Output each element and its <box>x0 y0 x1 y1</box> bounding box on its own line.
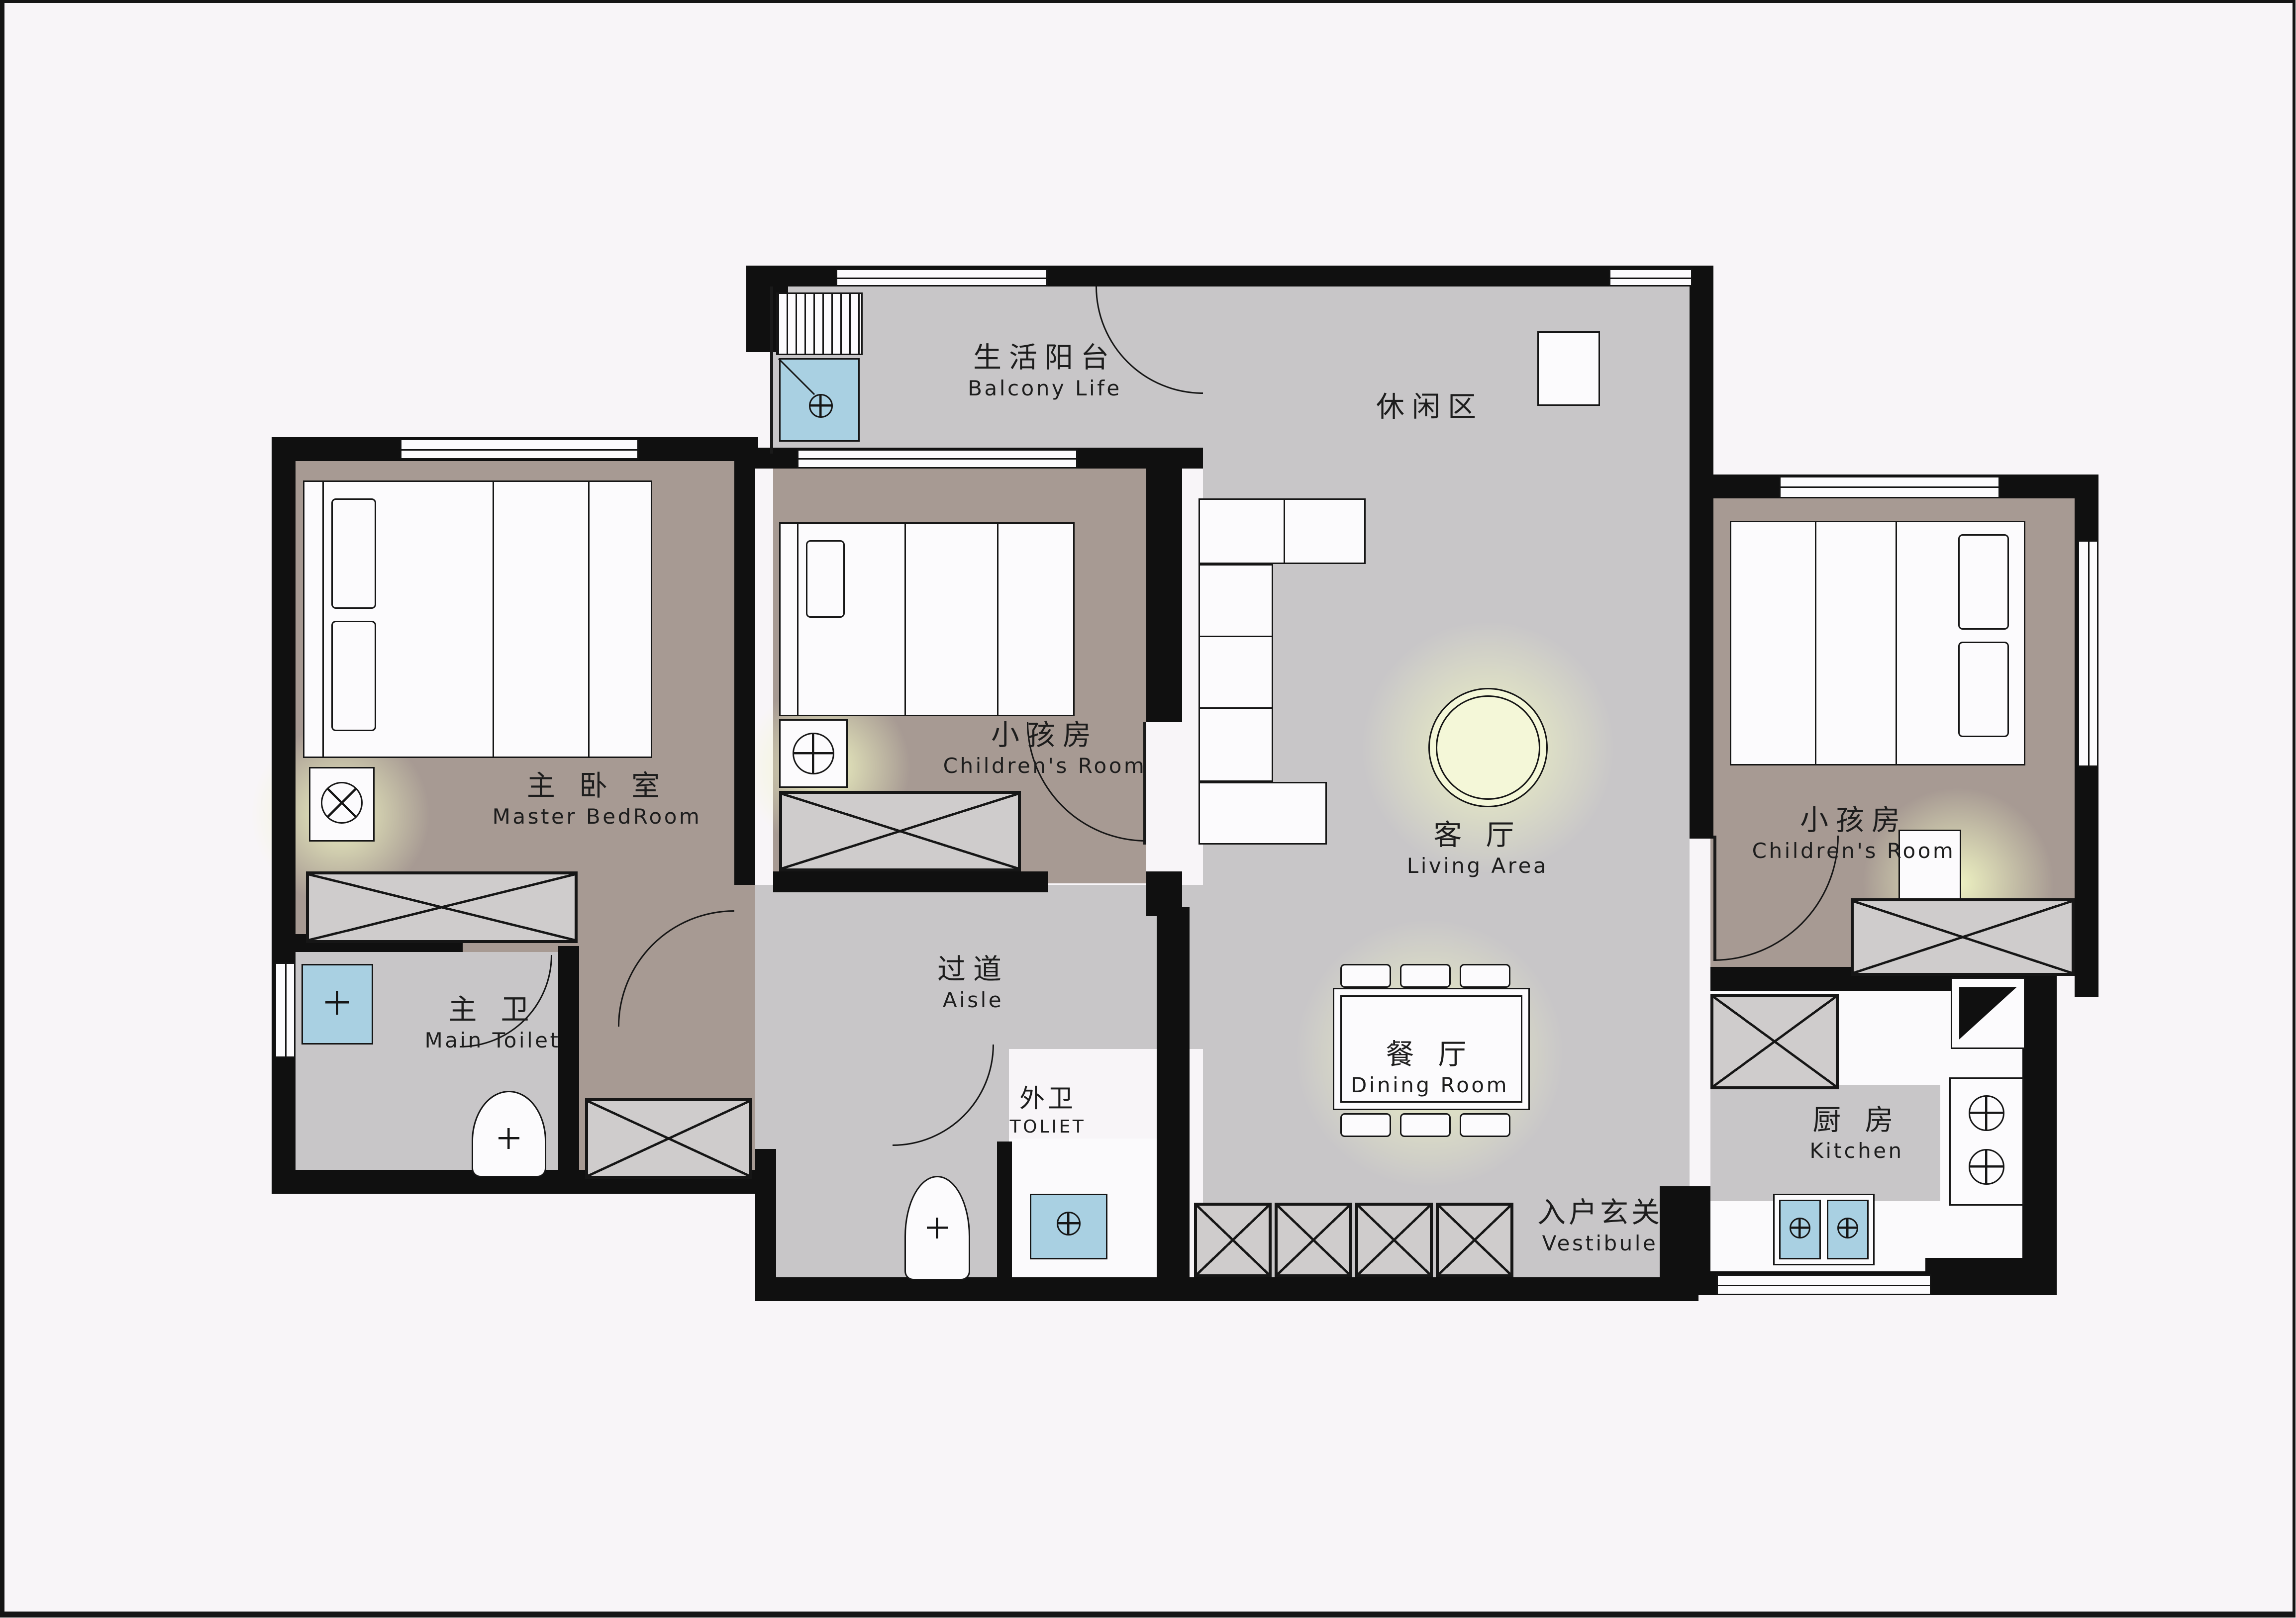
bed-divider-line <box>1896 521 1897 765</box>
wardrobe-cabinet-icon <box>306 871 578 943</box>
room-label-dining-en: Dining Room <box>1351 1074 1509 1098</box>
room-label-living: 客 厅 Living Area <box>1407 813 1548 879</box>
window-children-right-side <box>2078 540 2098 767</box>
structural-column <box>1537 331 1600 406</box>
room-label-vestibule: 入户玄关 Vestibule <box>1537 1191 1663 1256</box>
round-rug-light-icon <box>1428 688 1548 807</box>
floor-plan-canvas: 生活阳台 Balcony Life 休闲区 主 卧 室 Master BedRo… <box>0 0 2296 1618</box>
room-label-aisle: 过道 Aisle <box>937 948 1009 1013</box>
room-label-children-right-zh: 小孩房 <box>1752 798 1956 839</box>
wall-segment <box>272 437 296 1194</box>
room-label-master-bedroom: 主 卧 室 Master BedRoom <box>493 764 702 830</box>
wall-segment <box>755 1277 1203 1301</box>
room-label-children-center-en: Children's Room <box>943 755 1147 779</box>
room-label-vestibule-en: Vestibule <box>1537 1233 1663 1256</box>
window-kitchen-bottom <box>1716 1274 1931 1295</box>
refrigerator-icon <box>1951 977 2025 1049</box>
room-label-aisle-en: Aisle <box>937 989 1009 1013</box>
wall-segment <box>1146 448 1182 722</box>
room-label-outer-toilet-en: TOLIET <box>1010 1116 1086 1137</box>
faucet-icon <box>1837 1218 1858 1238</box>
rug-inner-ring <box>1436 695 1540 800</box>
room-label-balcony-en: Balcony Life <box>968 378 1122 401</box>
room-label-dining: 餐 厅 Dining Room <box>1351 1033 1509 1098</box>
wall-segment <box>734 437 755 885</box>
wall-segment <box>1191 1277 1698 1301</box>
window-balcony-top <box>836 269 1048 286</box>
sofa-divider-line <box>1284 498 1286 564</box>
wall-segment <box>1146 871 1182 916</box>
bed-divider-line <box>588 480 590 758</box>
window-main-toilet-side <box>275 962 296 1058</box>
faucet-icon <box>1790 1218 1810 1238</box>
faucet-icon <box>325 991 349 1015</box>
room-label-master-en: Master BedRoom <box>493 806 702 830</box>
lamp-icon <box>321 782 363 824</box>
faucet-icon <box>1057 1212 1081 1236</box>
dining-chair <box>1460 964 1510 988</box>
kitchen-cabinet-icon <box>1710 994 1839 1089</box>
children-wardrobe-icon <box>779 791 1021 871</box>
wall-segment <box>997 1142 1012 1283</box>
room-label-main-toilet-en: Main Toilet <box>425 1030 561 1053</box>
pillow-icon <box>331 498 376 609</box>
pillow-icon <box>806 540 845 618</box>
wall-segment <box>1690 480 1713 839</box>
bed-divider-line <box>493 480 495 758</box>
dining-chair <box>1460 1113 1510 1137</box>
drain-icon <box>809 394 833 418</box>
sofa-divider-line <box>1198 636 1273 638</box>
dresser-cabinet-icon <box>585 1098 752 1179</box>
balcony-left-line <box>770 286 773 454</box>
room-label-children-center-zh: 小孩房 <box>943 713 1147 754</box>
room-label-leisure: 休闲区 <box>1376 385 1484 425</box>
bed-divider-line <box>997 522 999 716</box>
room-label-master-zh: 主 卧 室 <box>493 764 702 804</box>
sofa-top-section <box>1198 498 1366 564</box>
pillow-icon <box>1958 534 2009 630</box>
wall-segment <box>773 871 1048 892</box>
wall-segment <box>1660 1186 1710 1279</box>
sofa-side-section <box>1198 564 1273 782</box>
room-label-main-toilet-zh: 主 卫 <box>425 988 561 1028</box>
dining-chair <box>1400 964 1451 988</box>
burner-icon <box>1969 1149 2004 1185</box>
room-label-balcony-zh: 生活阳台 <box>968 336 1122 376</box>
window-children-center-top <box>797 449 1078 469</box>
wall-segment <box>2022 967 2057 1295</box>
bed-divider-line <box>904 522 906 716</box>
pillow-icon <box>1958 642 2009 737</box>
shoe-cabinet-icon <box>1355 1203 1433 1277</box>
wall-segment <box>1157 907 1190 1301</box>
window-children-right-top <box>1779 476 2000 498</box>
drying-rack-icon <box>776 292 863 355</box>
shoe-cabinet-icon <box>1194 1203 1272 1277</box>
room-label-kitchen-zh: 厨 房 <box>1809 1098 1903 1139</box>
dining-chair <box>1340 964 1391 988</box>
shoe-cabinet-icon <box>1436 1203 1513 1277</box>
room-label-children-right-en: Children's Room <box>1752 840 1956 864</box>
flush-icon <box>927 1218 948 1238</box>
room-label-leisure-zh: 休闲区 <box>1376 385 1484 425</box>
room-label-kitchen-en: Kitchen <box>1809 1140 1903 1164</box>
room-label-balcony: 生活阳台 Balcony Life <box>968 336 1122 401</box>
room-label-children-center: 小孩房 Children's Room <box>943 713 1147 779</box>
wall-segment <box>558 946 579 1185</box>
sofa-divider-line <box>1198 707 1273 709</box>
room-label-outer-toilet-zh: 外卫 <box>1010 1077 1086 1115</box>
room-label-living-zh: 客 厅 <box>1407 813 1548 854</box>
room-label-aisle-zh: 过道 <box>937 948 1009 988</box>
bed-divider-line <box>1815 521 1817 765</box>
pillow-icon <box>331 621 376 731</box>
wall-segment <box>1925 1258 2057 1295</box>
bed-headboard-line <box>322 480 324 758</box>
room-label-living-en: Living Area <box>1407 855 1548 879</box>
room-label-children-right: 小孩房 Children's Room <box>1752 798 1956 864</box>
room-label-kitchen: 厨 房 Kitchen <box>1809 1098 1903 1164</box>
wall-segment <box>1690 266 1713 483</box>
room-label-main-toilet: 主 卫 Main Toilet <box>425 988 561 1053</box>
sofa-end-section <box>1198 782 1327 845</box>
lamp-icon <box>793 733 834 774</box>
window-master-top <box>400 439 639 460</box>
room-label-dining-zh: 餐 厅 <box>1351 1033 1509 1073</box>
bed-headboard-line <box>797 522 799 716</box>
dining-chair <box>1340 1113 1391 1137</box>
burner-icon <box>1969 1095 2004 1131</box>
children-wardrobe-icon <box>1851 898 2075 976</box>
flush-icon <box>499 1128 519 1149</box>
refrigerator-wedge <box>1957 983 2019 1043</box>
window-living-top <box>1609 269 1693 286</box>
room-label-outer-toilet: 外卫 TOLIET <box>1010 1077 1086 1137</box>
room-label-vestibule-zh: 入户玄关 <box>1537 1191 1663 1231</box>
shoe-cabinet-icon <box>1275 1203 1352 1277</box>
dining-chair <box>1400 1113 1451 1137</box>
